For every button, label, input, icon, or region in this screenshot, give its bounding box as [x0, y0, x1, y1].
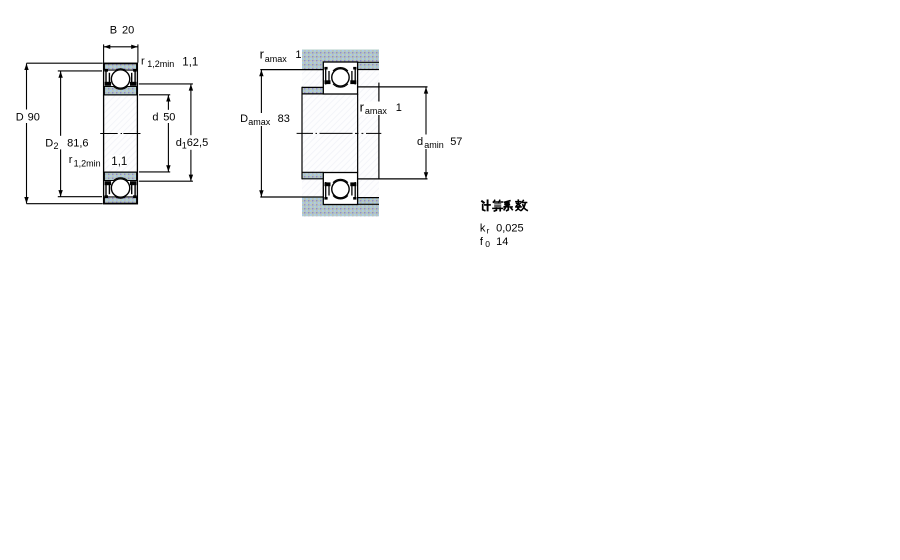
svg-text:amin: amin — [424, 140, 444, 150]
svg-text:d: d — [417, 136, 423, 148]
svg-text:14: 14 — [496, 236, 508, 248]
svg-text:81,6: 81,6 — [67, 138, 88, 150]
svg-text:r: r — [487, 226, 490, 236]
svg-text:1,1: 1,1 — [182, 56, 198, 68]
svg-text:57: 57 — [450, 136, 462, 148]
svg-text:0: 0 — [485, 239, 490, 249]
svg-text:1: 1 — [295, 49, 301, 61]
svg-text:amax: amax — [365, 106, 388, 116]
svg-text:k: k — [480, 223, 486, 235]
svg-text:1: 1 — [396, 102, 402, 114]
svg-text:20: 20 — [122, 25, 134, 37]
svg-text:0,025: 0,025 — [496, 223, 524, 235]
svg-text:amax: amax — [265, 54, 288, 64]
svg-text:1,1: 1,1 — [111, 156, 127, 168]
svg-text:83: 83 — [278, 113, 290, 125]
svg-text:90: 90 — [28, 112, 40, 124]
svg-text:B: B — [110, 25, 117, 37]
svg-text:62,5: 62,5 — [187, 137, 208, 149]
svg-text:r: r — [69, 154, 73, 166]
svg-text:f: f — [480, 236, 484, 248]
svg-text:amax: amax — [248, 117, 271, 127]
svg-text:1,2min: 1,2min — [74, 158, 101, 168]
svg-text:D: D — [16, 112, 24, 124]
svg-text:d: d — [152, 112, 158, 124]
svg-text:r: r — [141, 56, 145, 68]
svg-text:D: D — [45, 138, 53, 150]
svg-text:2: 2 — [54, 141, 59, 151]
svg-text:D: D — [240, 113, 248, 125]
svg-text:r: r — [360, 99, 365, 114]
svg-text:1,2min: 1,2min — [147, 59, 174, 69]
svg-text:50: 50 — [163, 112, 175, 124]
